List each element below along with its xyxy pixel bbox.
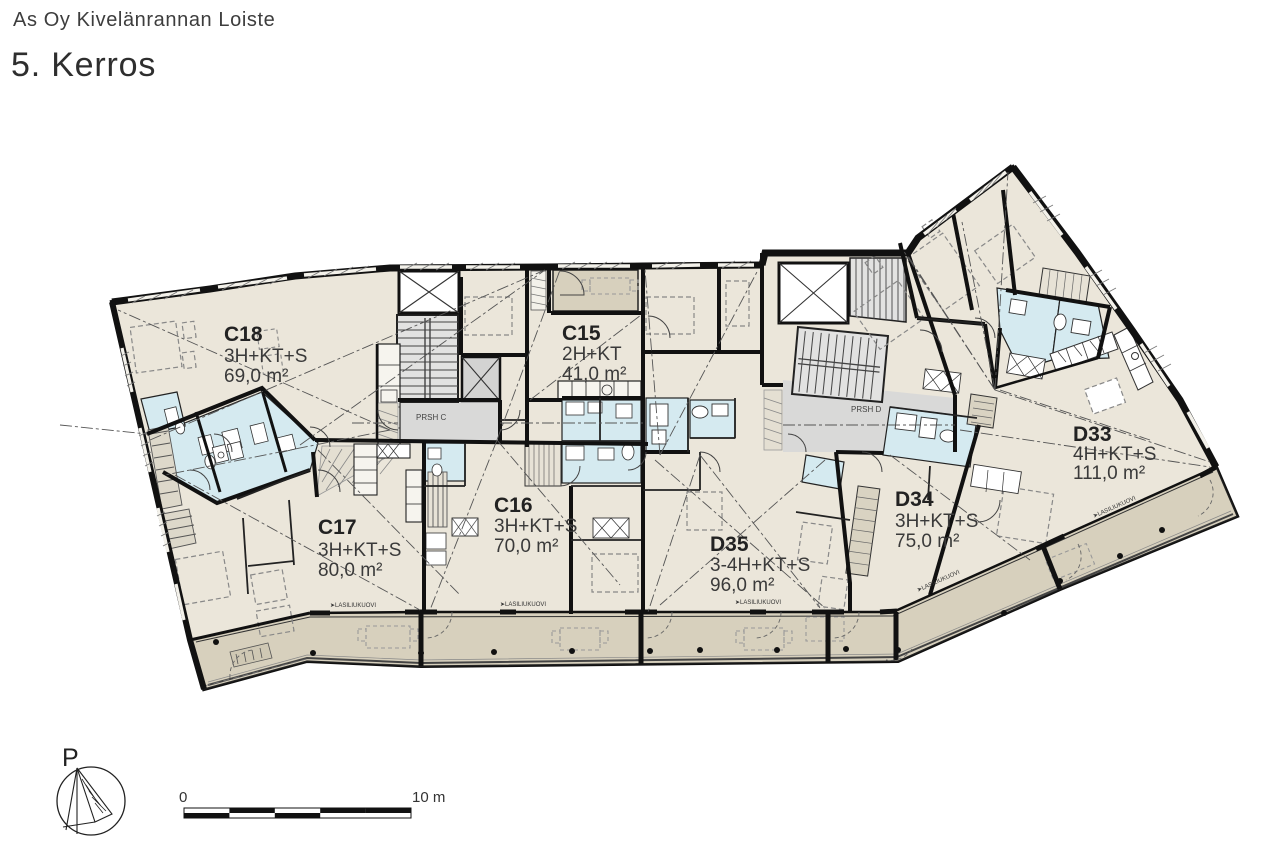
svg-text:C17: C17	[318, 516, 357, 539]
svg-text:As Oy Kivelänrannan Loiste: As Oy Kivelänrannan Loiste	[13, 9, 275, 31]
svg-text:D33: D33	[1073, 423, 1112, 446]
svg-text:P: P	[62, 744, 79, 772]
svg-text:3H+KT+S: 3H+KT+S	[494, 516, 577, 537]
svg-text:0: 0	[179, 789, 187, 806]
svg-text:C18: C18	[224, 323, 263, 346]
svg-text:➤LASILIUKUOVI: ➤LASILIUKUOVI	[735, 600, 781, 606]
svg-text:2H+KT: 2H+KT	[562, 344, 622, 365]
svg-text:96,0 m²: 96,0 m²	[710, 575, 774, 596]
svg-text:111,0 m²: 111,0 m²	[1073, 463, 1145, 484]
svg-text:69,0 m²: 69,0 m²	[224, 366, 288, 387]
svg-text:70,0 m²: 70,0 m²	[494, 536, 558, 557]
svg-text:➤LASILIUKUOVI: ➤LASILIUKUOVI	[500, 602, 546, 608]
svg-text:C15: C15	[562, 322, 601, 345]
svg-text:PRSH D: PRSH D	[851, 405, 881, 414]
svg-text:PRSH C: PRSH C	[416, 413, 446, 422]
svg-text:3-4H+KT+S: 3-4H+KT+S	[710, 555, 810, 576]
svg-text:41,0 m²: 41,0 m²	[562, 364, 626, 385]
svg-text:3H+KT+S: 3H+KT+S	[318, 540, 401, 561]
svg-text:D34: D34	[895, 488, 934, 511]
svg-text:4H+KT+S: 4H+KT+S	[1073, 444, 1156, 465]
svg-text:3H+KT+S: 3H+KT+S	[895, 511, 978, 532]
svg-text:75,0 m²: 75,0 m²	[895, 531, 959, 552]
svg-text:C16: C16	[494, 494, 533, 517]
svg-text:3H+KT+S: 3H+KT+S	[224, 346, 307, 367]
svg-text:5. Kerros: 5. Kerros	[11, 46, 156, 84]
svg-text:D35: D35	[710, 533, 749, 556]
svg-text:➤LASILIUKUOVI: ➤LASILIUKUOVI	[330, 603, 376, 609]
svg-text:80,0 m²: 80,0 m²	[318, 560, 382, 581]
svg-text:10 m: 10 m	[412, 789, 445, 806]
